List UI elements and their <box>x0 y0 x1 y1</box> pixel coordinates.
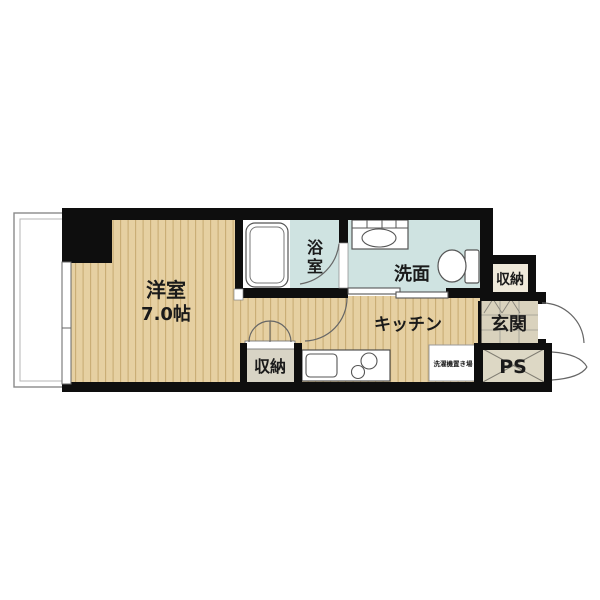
bath-label-char2: 室 <box>307 257 323 276</box>
floorplan-page: 洋室 7.0帖 浴 室 洗面 キッチン 収納 収納 玄関 PS 洗濯機置き場 <box>0 0 600 600</box>
kitchen-label: キッチン <box>374 315 442 335</box>
wall-living-bath <box>235 208 243 290</box>
wall-entrance-top <box>480 292 546 301</box>
living-room-size-label: 7.0帖 <box>141 303 191 325</box>
wall-top <box>62 208 493 220</box>
entrance-label: 玄関 <box>491 313 527 335</box>
living-room-label: 洋室 <box>146 278 186 302</box>
laundry-space-label: 洗濯機置き場 <box>434 359 474 368</box>
pipe-space-label: PS <box>499 356 527 378</box>
entrance-door-arc <box>542 303 584 343</box>
wall-closet-lower-right <box>294 343 302 390</box>
wall-closet-entry-right <box>528 255 536 295</box>
kitchen-sink <box>306 354 337 377</box>
kitchen-counter <box>302 350 390 381</box>
balcony-outer-rail <box>14 213 68 387</box>
wall-ps-left <box>474 343 483 390</box>
wall-bath-kitchen <box>242 288 348 298</box>
wall-corner-block <box>62 208 112 263</box>
wall-end-cap <box>234 289 243 300</box>
entrance-step-line <box>478 301 482 345</box>
ps-double-door-arcs <box>552 352 587 380</box>
wall-washroom-right <box>480 208 493 296</box>
washroom-label: 洗面 <box>394 263 430 285</box>
balcony <box>14 213 68 387</box>
wall-bath-washroom-upper <box>339 218 348 245</box>
bathtub <box>246 223 288 287</box>
wall-entrance-right-upper <box>538 292 546 304</box>
wall-closet-lower-left <box>240 343 247 390</box>
closet-lower-threshold <box>245 341 295 349</box>
toilet <box>438 250 479 283</box>
living-room-window <box>62 262 71 384</box>
wash-basin <box>352 220 408 249</box>
bath-door-opening <box>339 243 348 288</box>
bath-label-char1: 浴 <box>307 238 324 257</box>
closet-entry-label: 収納 <box>496 271 524 288</box>
closet-lower-label: 収納 <box>254 357 286 376</box>
wall-ps-top <box>476 343 552 350</box>
wall-ps-right <box>544 343 552 390</box>
floorplan-drawing: 洋室 7.0帖 浴 室 洗面 キッチン 収納 収納 玄関 PS 洗濯機置き場 <box>0 0 600 600</box>
